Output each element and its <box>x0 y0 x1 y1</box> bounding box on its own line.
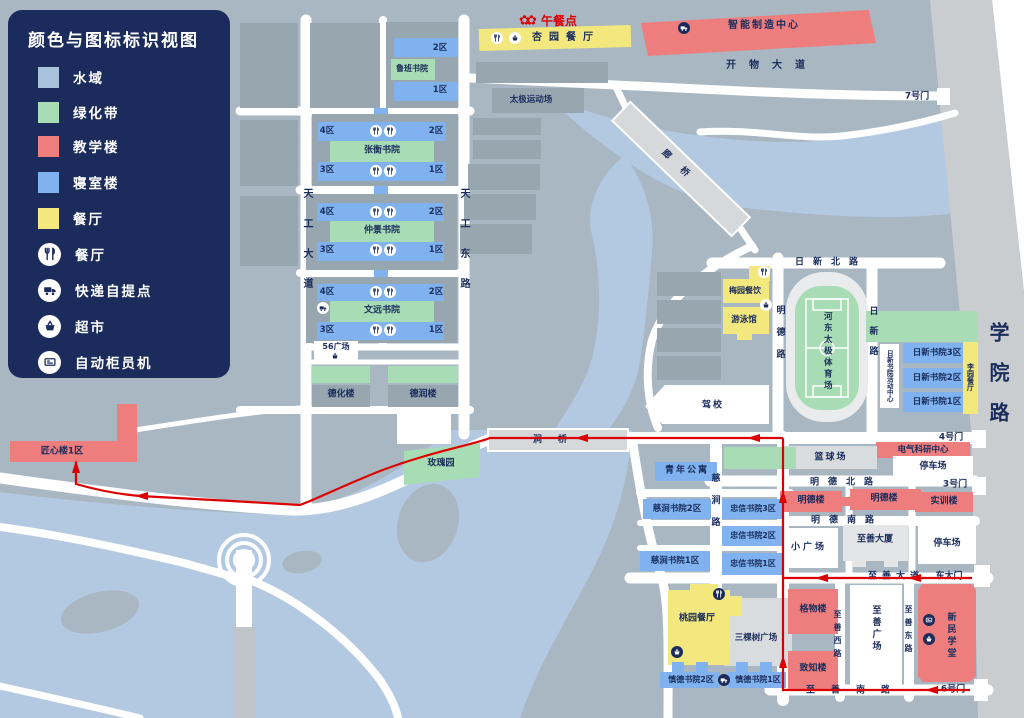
gate4-label: 4号门 <box>939 434 963 443</box>
meiyuan-label: 梅园餐饮 <box>729 287 761 295</box>
mingde-south-label: 明德南路 <box>811 517 883 526</box>
zhishan-tower-tab <box>884 560 898 567</box>
shende2-label: 慎德书院2区 <box>668 676 714 684</box>
legend-label: 寝室楼 <box>73 172 120 192</box>
derun-green <box>388 366 458 383</box>
rixin-north-label: 日新北路 <box>795 259 867 268</box>
parking-upper-label: 停车场 <box>919 463 946 472</box>
cijian-road-label: 慈涧路 <box>710 473 719 539</box>
gate3-label: 3号门 <box>943 481 967 490</box>
zone-label: 4区 <box>320 288 334 297</box>
restaurant-icon <box>491 32 503 44</box>
legend-item-restaurant: 餐厅 <box>38 242 106 266</box>
legend-item-supermarket: 超市 <box>38 314 106 338</box>
slat-building <box>476 62 608 83</box>
mingde-north-label: 明德北路 <box>810 479 882 488</box>
mingde-a-label: 明德楼 <box>797 497 824 506</box>
legend-label: 自动柜员机 <box>75 352 153 372</box>
restaurant-icon <box>370 324 382 336</box>
supermarket-icon <box>38 315 61 338</box>
zhishan-south-label: 至善南路 <box>806 687 906 696</box>
slat-building <box>473 140 541 159</box>
atm-icon <box>38 351 61 374</box>
gate7-label: 7号门 <box>905 93 929 102</box>
supermarket-icon <box>671 646 683 658</box>
rixin-road-label: 日新路 <box>868 306 877 366</box>
mingde-connector <box>842 497 850 506</box>
zhishan-plaza-label: 至善广场 <box>871 605 880 653</box>
mingde-b-label: 明德楼 <box>870 495 897 504</box>
pier-walk <box>236 550 252 628</box>
dorm-swatch <box>38 172 59 193</box>
sankeshu-label: 三棵树广场 <box>735 634 778 643</box>
zone-label: 3区 <box>320 166 334 175</box>
taiji-field-label: 太极运动场 <box>510 96 553 105</box>
building-block <box>240 23 298 108</box>
driving-school-label: 驾校 <box>702 402 724 411</box>
zhongxin3-label: 忠信书院3区 <box>730 505 776 513</box>
restaurant-icon <box>370 244 382 256</box>
slat-building <box>657 272 721 296</box>
building-block <box>240 196 298 266</box>
shixun-label: 实训楼 <box>930 498 957 507</box>
slat-building <box>468 164 540 190</box>
zhizhi-label: 致知楼 <box>799 665 826 674</box>
teaching-swatch <box>38 136 59 157</box>
liyuan-label: 李园餐厅 <box>967 363 974 391</box>
pier <box>233 627 255 718</box>
tiangong-east-label: 天工东路 <box>458 188 468 308</box>
jiangxin-label: 匠心楼1区 <box>41 448 83 457</box>
swimming-label: 游泳馆 <box>731 316 757 325</box>
restaurant-icon <box>384 165 396 177</box>
zhishan-avenue-label: 至善大道 <box>868 573 924 582</box>
zhangheng-label: 张衡书院 <box>364 147 400 156</box>
jiangxin-building-wing <box>117 404 137 462</box>
parcel-pickup-icon <box>38 279 61 302</box>
white-plaza-block <box>397 408 451 444</box>
zone-label: 1区 <box>433 86 447 95</box>
legend-item-atm: 自动柜员机 <box>38 350 153 374</box>
rixin2-label: 日新书院2区 <box>913 374 961 383</box>
jianqiao-bridge: 涧桥 <box>487 428 629 452</box>
luban-zone2-dorm <box>394 38 458 57</box>
rixin3-label: 日新书院3区 <box>913 349 961 358</box>
restaurant-icon <box>370 165 382 177</box>
legend-label: 餐厅 <box>75 244 106 264</box>
zhongxin1-label: 忠信书院1区 <box>730 560 776 568</box>
cijian2-label: 慈涧书院2区 <box>653 505 701 514</box>
zhishan-east-label: 至善东路 <box>904 605 912 657</box>
gate6 <box>974 679 988 701</box>
shende-tab <box>736 662 748 672</box>
legend-label: 餐厅 <box>73 208 104 228</box>
derun-label: 德润楼 <box>409 391 436 400</box>
greenbelt-strip <box>866 311 978 342</box>
campus-map: 颜色与图标标识视图 水域 绿化带 教学楼 寝室楼 餐厅 餐厅 快递自提点 超市 … <box>0 0 1024 718</box>
zhangheng-south-dorm <box>318 162 446 181</box>
restaurant-icon <box>384 206 396 218</box>
zone-label: 2区 <box>429 288 443 297</box>
xueyuan-road-label: 学院路 <box>988 322 1008 442</box>
legend-item-greenbelt: 绿化带 <box>38 100 120 124</box>
dianqi-label: 电气科研中心 <box>897 446 948 455</box>
legend-label: 超市 <box>75 316 106 336</box>
kaiwu-avenue-label: 开物大道 <box>726 61 818 71</box>
restaurant-icon <box>713 588 725 600</box>
shende-tab <box>672 662 684 672</box>
xingyuan-label: 杏园餐厅 <box>532 33 600 43</box>
basketball-label: 篮球场 <box>814 454 847 463</box>
rixin1-label: 日新书院1区 <box>913 398 961 407</box>
legend-item-dorm: 寝室楼 <box>38 170 120 194</box>
stadium-label: 河东太极体育场 <box>823 312 832 393</box>
lunch-point-label: 午餐点 <box>541 15 577 27</box>
mingde-road-label: 明德路 <box>775 305 784 371</box>
parcel-pickup-icon <box>718 674 730 686</box>
tiangong-avenue-label: 天工大道 <box>301 188 311 308</box>
small-plaza-label: 小广场 <box>791 544 827 553</box>
restaurant-icon <box>38 243 61 266</box>
restaurant-icon <box>384 324 396 336</box>
slat-building <box>657 328 721 352</box>
restaurant-icon <box>370 286 382 298</box>
gewu-label: 格物楼 <box>799 606 826 615</box>
restaurant-icon <box>384 286 396 298</box>
rixin-activity-label: 日新书院活动中心 <box>886 350 893 402</box>
qingnian-label: 青年公寓 <box>665 467 709 476</box>
greenbelt-strip <box>724 447 796 469</box>
shende-tab <box>696 662 708 672</box>
restaurant-icon <box>384 125 396 137</box>
gate4 <box>972 430 986 448</box>
water-swatch <box>38 67 59 88</box>
xinmin-label: 新民学堂 <box>946 612 955 660</box>
east-gate-label: 东大门 <box>935 573 962 582</box>
legend-item-dining: 餐厅 <box>38 206 104 230</box>
gate7 <box>937 88 950 105</box>
slat-building <box>657 300 721 324</box>
zhangheng-north-dorm <box>318 122 446 141</box>
zhongjing-label: 仲景书院 <box>364 227 400 236</box>
dehua-label: 德化楼 <box>327 391 354 400</box>
legend-item-teaching: 教学楼 <box>38 134 120 158</box>
legend-title: 颜色与图标标识视图 <box>28 26 230 51</box>
gate3 <box>972 477 986 495</box>
zone-label: 2区 <box>429 208 443 217</box>
restaurant-icon <box>370 125 382 137</box>
supermarket-icon <box>329 350 341 362</box>
legend-item-water: 水域 <box>38 65 104 89</box>
slat-building <box>460 224 532 254</box>
swimming-hall-tab <box>737 334 752 340</box>
supermarket-icon <box>923 633 935 645</box>
slat-building <box>464 194 536 220</box>
legend-label: 快递自提点 <box>75 280 153 300</box>
shende-tab <box>760 662 772 672</box>
supermarket-icon <box>760 299 772 311</box>
jianqiao-label: 涧桥 <box>533 436 583 445</box>
rose-garden-label: 玫瑰园 <box>427 460 454 469</box>
legend-label: 教学楼 <box>73 136 120 156</box>
zone-label: 4区 <box>320 208 334 217</box>
legend-item-parcel: 快递自提点 <box>38 278 153 302</box>
building-block <box>310 23 380 108</box>
zone-label: 4区 <box>320 127 334 136</box>
legend-label: 绿化带 <box>73 102 120 122</box>
zhongxin2-label: 忠信书院2区 <box>730 532 776 540</box>
shende1-label: 慎德书院1区 <box>735 676 781 684</box>
zhineng-label: 智能制造中心 <box>728 21 800 31</box>
east-gate <box>974 565 990 587</box>
zone-label: 1区 <box>429 326 443 335</box>
zhishan-west-label: 至善西路 <box>833 610 841 662</box>
atm-icon <box>923 614 935 626</box>
restaurant-icon <box>384 244 396 256</box>
zone-label: 3区 <box>320 326 334 335</box>
restaurant-icon <box>758 266 770 278</box>
wenyuan-label: 文远书院 <box>364 307 400 316</box>
building-block <box>240 120 298 186</box>
zone-label: 2区 <box>433 44 447 53</box>
legend-panel: 颜色与图标标识视图 水域 绿化带 教学楼 寝室楼 餐厅 餐厅 快递自提点 超市 … <box>8 10 230 378</box>
parcel-pickup-icon <box>317 302 329 314</box>
dehua-green <box>312 366 370 383</box>
slat-building <box>657 356 721 380</box>
supermarket-icon <box>509 32 521 44</box>
zone-label: 1区 <box>429 246 443 255</box>
dining-swatch <box>38 208 59 229</box>
parcel-pickup-icon <box>678 22 690 34</box>
zhishan-tower-label: 至善大厦 <box>857 536 893 545</box>
greenbelt-swatch <box>38 102 59 123</box>
taoyuan-label: 桃园餐厅 <box>679 615 715 624</box>
gate6-label: 6号门 <box>941 686 965 695</box>
restaurant-icon <box>370 206 382 218</box>
zone-label: 1区 <box>429 166 443 175</box>
slat-building <box>473 118 541 135</box>
lunch-flower-icon: ✿✿ <box>519 14 533 29</box>
zone-label: 3区 <box>320 246 334 255</box>
cijian1-label: 慈涧书院1区 <box>651 557 699 566</box>
luban-label: 鲁班书院 <box>396 65 428 73</box>
luban-zone1-dorm <box>394 82 458 101</box>
zhishan-tower-tab <box>852 560 866 567</box>
parking-lower-label: 停车场 <box>933 540 960 549</box>
zone-label: 2区 <box>429 127 443 136</box>
legend-label: 水域 <box>73 67 104 87</box>
